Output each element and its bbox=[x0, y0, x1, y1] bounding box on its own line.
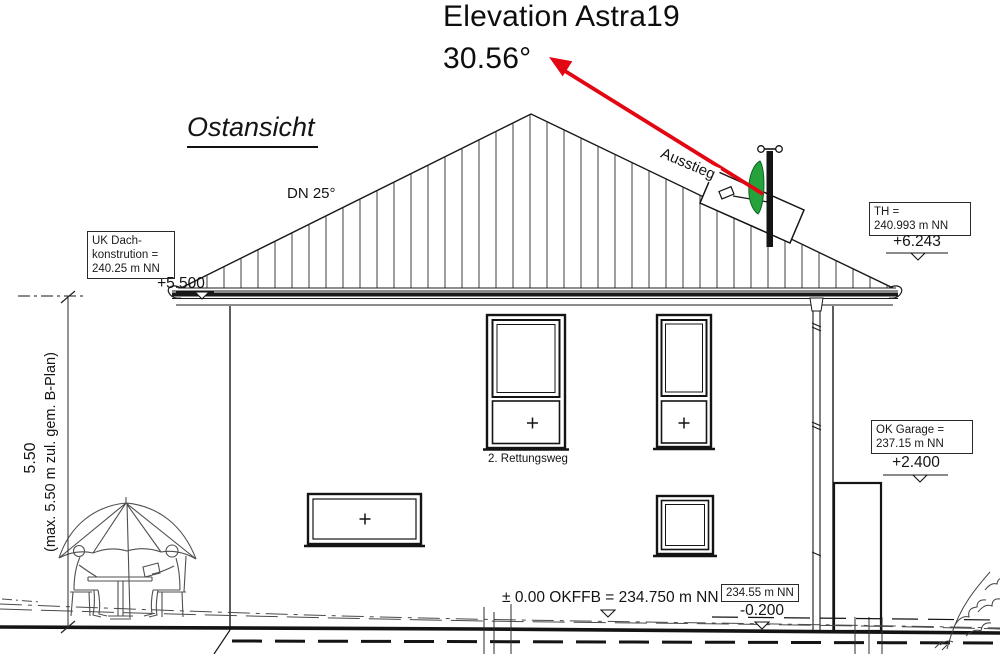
th-box: TH = 240.993 m NN bbox=[869, 202, 971, 236]
th-level: +6.243 bbox=[885, 233, 949, 251]
ok-garage-line2: 237.15 m NN bbox=[876, 437, 968, 451]
foundation-dashed-line bbox=[232, 641, 1000, 643]
view-name: Ostansicht bbox=[187, 112, 318, 148]
uk-dach-line1: UK Dach- bbox=[92, 234, 170, 248]
ok-garage-level: +2.400 bbox=[884, 454, 948, 472]
window-upper-right bbox=[653, 315, 715, 449]
window-ground-square bbox=[653, 496, 717, 556]
downspout bbox=[810, 298, 823, 630]
elevation-drawing: Elevation Astra19 30.56° Ostansicht DN 2… bbox=[0, 0, 1000, 654]
uk-dach-level: +5.500 bbox=[148, 275, 214, 293]
dimension-note: (max. 5.50 m zul. gem. B-Plan) bbox=[43, 352, 59, 552]
uk-dach-line3: 240.25 m NN bbox=[92, 262, 170, 276]
window-upper-left bbox=[483, 315, 569, 450]
antenna-top-left-ball bbox=[758, 146, 765, 153]
ok-garage-box: OK Garage = 237.15 m NN bbox=[871, 420, 973, 454]
okffb-label: ± 0.00 OKFFB = 234.750 m NN bbox=[502, 589, 719, 607]
uk-dach-line2: konstrution = bbox=[92, 248, 170, 262]
elevation-angle: 30.56° bbox=[443, 42, 531, 77]
th-line1: TH = bbox=[874, 205, 966, 219]
terrain-level-value: -0.200 bbox=[730, 602, 794, 620]
uk-dach-box: UK Dach- konstrution = 240.25 m NN bbox=[87, 231, 175, 279]
garage-outline bbox=[834, 483, 881, 631]
height-dimension-line bbox=[61, 291, 75, 633]
drawing-linework bbox=[0, 0, 1000, 654]
terrain-level-box: 234.55 m NN bbox=[721, 584, 799, 602]
page-title: Elevation Astra19 bbox=[443, 0, 680, 35]
people-sketch bbox=[59, 497, 196, 619]
eave-fascia bbox=[168, 286, 902, 305]
bush-sketch bbox=[935, 572, 1000, 650]
window-ground-wide bbox=[304, 494, 425, 546]
windows bbox=[304, 315, 717, 556]
antenna-mast bbox=[767, 151, 774, 247]
th-line2: 240.993 m NN bbox=[874, 219, 966, 233]
dimension-value: 5.50 bbox=[22, 442, 40, 473]
rescue-route-label: 2. Rettungsweg bbox=[488, 453, 568, 467]
ok-garage-line1: OK Garage = bbox=[876, 423, 968, 437]
roof-pitch-label: DN 25° bbox=[287, 185, 336, 202]
antenna-top-right-ball bbox=[776, 146, 783, 153]
